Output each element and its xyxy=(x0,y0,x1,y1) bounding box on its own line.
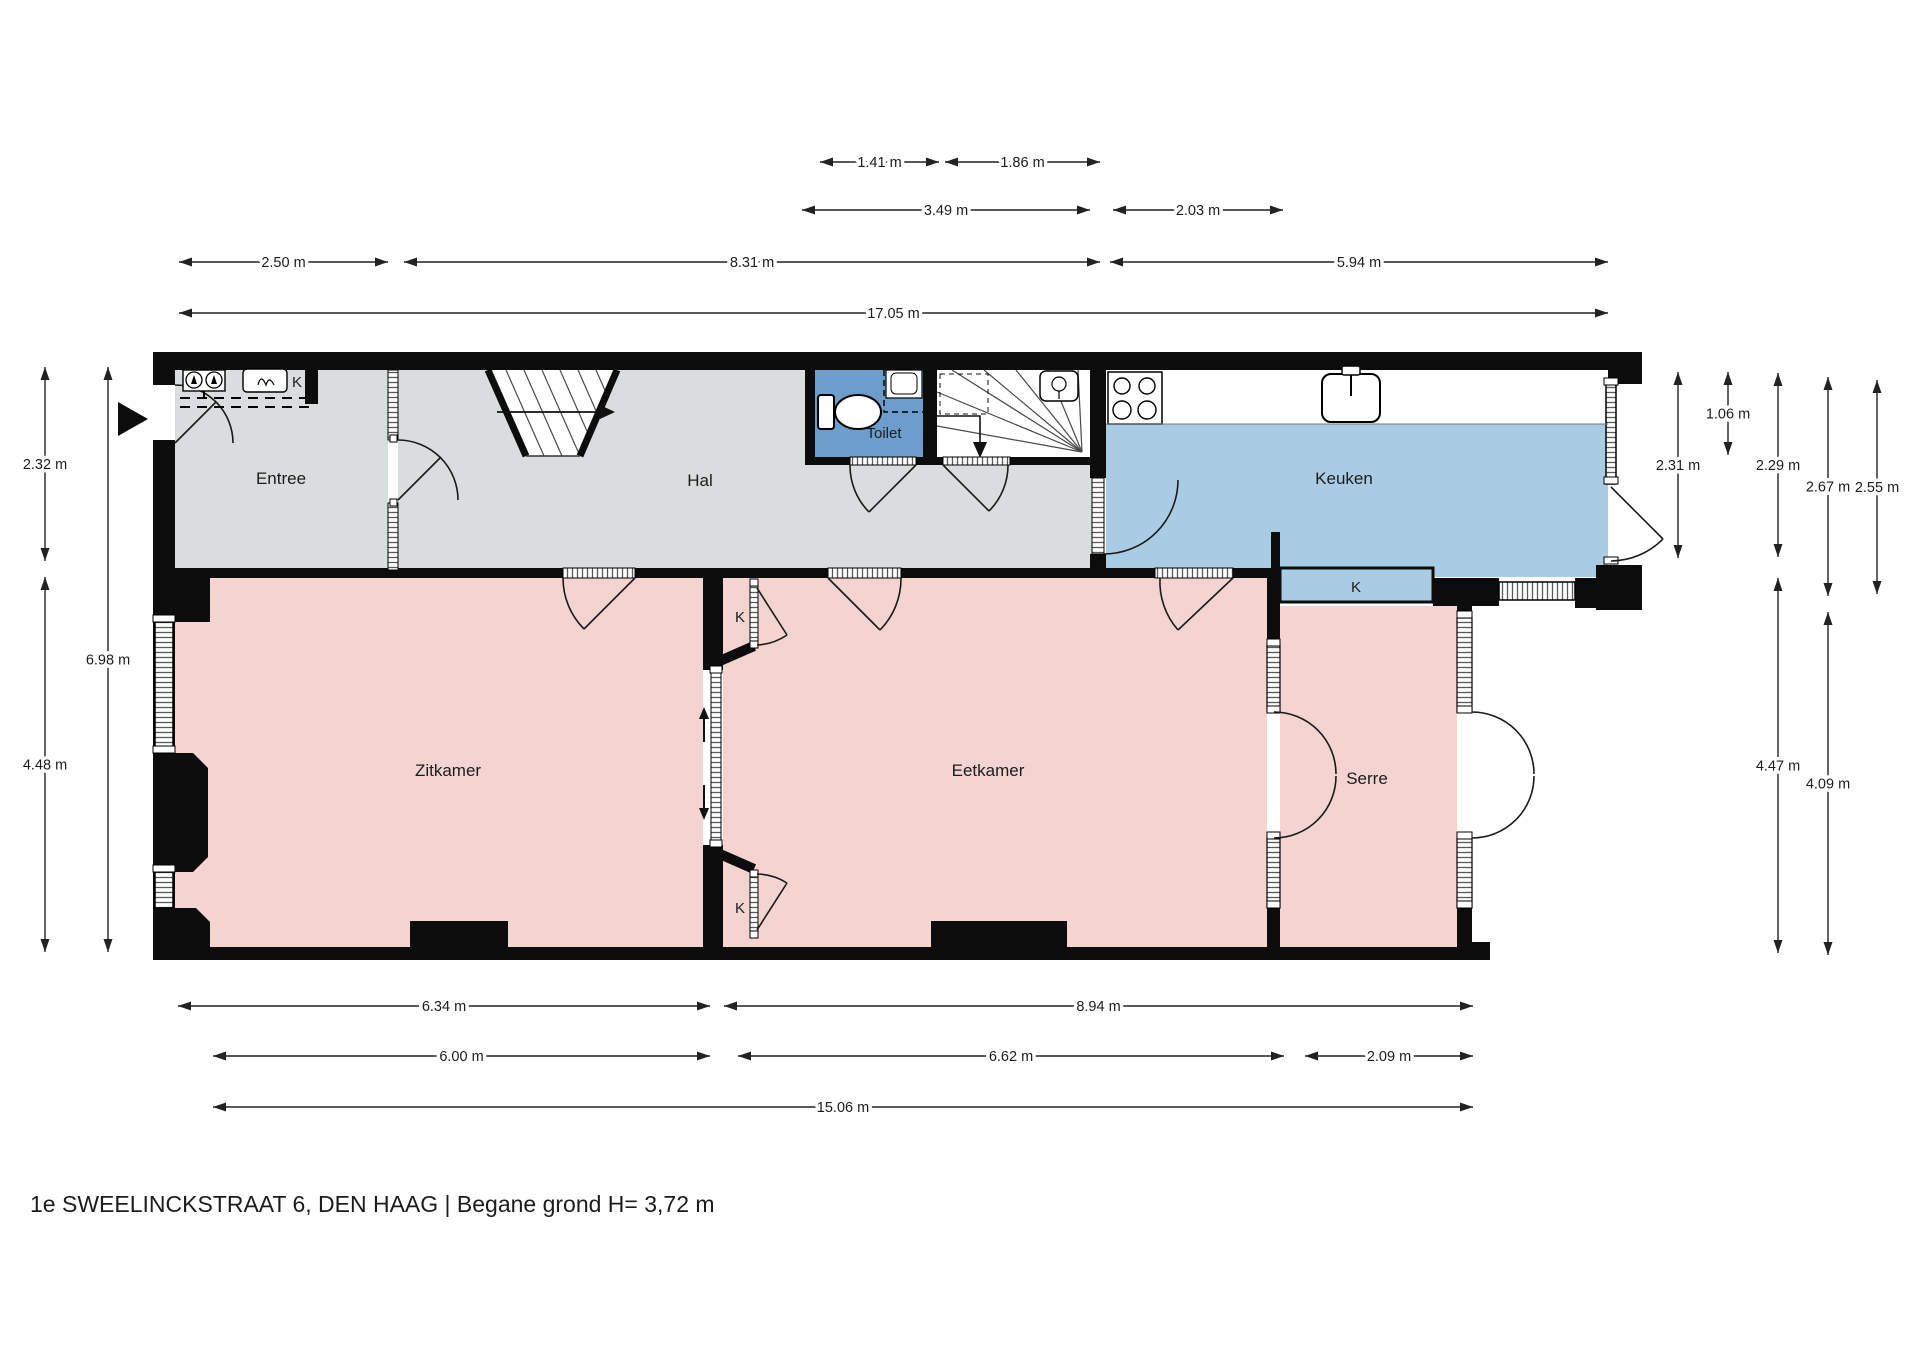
wall-corner-keuken-right xyxy=(1596,565,1642,610)
door-sill-hal-zitkamer xyxy=(563,568,635,578)
dimension-label: 2.55 m xyxy=(1855,480,1899,496)
wall-bottom xyxy=(153,947,1490,960)
dimension-label: 6.98 m xyxy=(86,653,130,669)
glass-partition-entree-hal-upper xyxy=(388,370,398,440)
stove-icon xyxy=(1108,372,1162,424)
dimension-label: 8.31 m xyxy=(730,255,774,271)
room-keuken-floor xyxy=(1106,424,1608,577)
room-label-eetkamer: Eetkamer xyxy=(952,761,1025,780)
dimension-vertical: 2.55 m xyxy=(1855,380,1899,594)
glass-partition-entree-hal-lower xyxy=(388,503,398,570)
floorplan-drawing: Entree Hal Toilet Keuken Zitkamer Eetkam… xyxy=(0,0,1920,1358)
kitchen-sink-icon xyxy=(1322,366,1380,422)
dimension-label: 6.00 m xyxy=(439,1049,483,1065)
dimension-horizontal: 2.03 m xyxy=(1113,203,1283,219)
dimension-vertical: 4.47 m xyxy=(1756,578,1800,953)
wall-toilet-bottom-b xyxy=(916,457,943,465)
chimney-breast xyxy=(175,753,208,872)
dimension-vertical: 6.98 m xyxy=(86,367,130,952)
closet-door-bottom xyxy=(750,876,758,932)
wall-hal-keuken-upper xyxy=(1090,370,1106,478)
dimension-horizontal: 5.94 m xyxy=(1110,255,1608,271)
dimension-label: 5.94 m xyxy=(1337,255,1381,271)
dimension-vertical: 4.09 m xyxy=(1806,612,1850,955)
door-sill-toilet xyxy=(850,457,916,465)
wall-keuken-bottom-east xyxy=(1433,578,1499,606)
room-label-toilet: Toilet xyxy=(866,425,902,442)
page-title: 1e SWEELINCKSTRAAT 6, DEN HAAG | Begane … xyxy=(30,1191,715,1217)
glass-ensuite-partition xyxy=(711,672,721,843)
room-label-zitkamer: Zitkamer xyxy=(415,761,481,780)
closet-label-bottom: K xyxy=(735,900,745,917)
dimension-label: 6.62 m xyxy=(989,1049,1033,1065)
dimension-horizontal: 2.50 m xyxy=(179,255,388,271)
dimension-label: 3.49 m xyxy=(924,203,968,219)
heater-cabinet-icon xyxy=(243,369,287,392)
room-label-hal: Hal xyxy=(687,471,713,490)
french-doors-serre-exterior xyxy=(1472,712,1534,838)
window-keuken-right xyxy=(1606,384,1616,484)
toilet-icon xyxy=(818,395,881,429)
window-zitkamer-left-upper xyxy=(155,622,173,753)
dimension-horizontal: 3.49 m xyxy=(802,203,1090,219)
dimension-label: 2.09 m xyxy=(1367,1049,1411,1065)
dimension-label: 2.32 m xyxy=(23,457,67,473)
window-keuken-bottom xyxy=(1499,582,1575,600)
dimension-horizontal: 6.62 m xyxy=(738,1049,1284,1065)
wall-top xyxy=(153,352,1642,370)
dimension-label: 15.06 m xyxy=(817,1100,869,1116)
room-label-serre: Serre xyxy=(1346,769,1388,788)
wall-pier-eetkamer xyxy=(931,921,1067,947)
wall-block-zitkamer-topleft xyxy=(175,578,210,622)
window-serre-left-upper xyxy=(1267,645,1280,712)
wall-toilet-bottom-a xyxy=(805,457,850,465)
dimension-label: 6.34 m xyxy=(422,999,466,1015)
dimension-horizontal: 17.05 m xyxy=(179,306,1608,322)
wall-stairs-bottom xyxy=(1010,457,1090,465)
dimension-label: 17.05 m xyxy=(867,306,919,322)
entrance-door-opening xyxy=(153,385,175,440)
dimension-label: 8.94 m xyxy=(1076,999,1120,1015)
door-keuken-exterior xyxy=(1611,487,1663,561)
dimension-horizontal: 15.06 m xyxy=(213,1100,1473,1116)
wall-corner-serre-bottomright xyxy=(1457,942,1490,960)
door-sill-stairs xyxy=(943,457,1010,465)
closet-label-top: K xyxy=(735,609,745,626)
closet-label-keuken: K xyxy=(1351,579,1361,596)
wall-serre-left-top xyxy=(1267,577,1280,645)
wall-toilet-left xyxy=(805,370,815,465)
dimension-label: 4.48 m xyxy=(23,758,67,774)
dimension-horizontal: 6.34 m xyxy=(178,999,710,1015)
dimension-horizontal: 1.86 m xyxy=(945,155,1100,171)
dimension-vertical: 2.67 m xyxy=(1806,377,1850,596)
dimension-label: 1.86 m xyxy=(1000,155,1044,171)
boiler-icon xyxy=(1040,371,1078,401)
dimension-vertical: 2.29 m xyxy=(1756,373,1800,557)
wall-stub-keuken-closet xyxy=(1271,532,1280,568)
dimension-horizontal: 8.94 m xyxy=(724,999,1473,1015)
wall-ensuite-spine-bottom xyxy=(703,845,723,947)
room-label-keuken: Keuken xyxy=(1315,469,1373,488)
dimension-vertical: 1.06 m xyxy=(1706,372,1750,455)
dimension-horizontal: 8.31 m xyxy=(404,255,1100,271)
dimension-vertical: 4.48 m xyxy=(23,577,67,952)
room-hal-floor-east xyxy=(805,465,1095,568)
window-serre-right-lower xyxy=(1457,838,1472,908)
wall-ensuite-spine-top xyxy=(703,568,723,670)
dimension-label: 2.29 m xyxy=(1756,458,1800,474)
dimension-label: 4.09 m xyxy=(1806,777,1850,793)
dimension-label: 4.47 m xyxy=(1756,759,1800,775)
dimension-horizontal: 6.00 m xyxy=(213,1049,710,1065)
wall-serre-right-bottom xyxy=(1457,908,1472,947)
window-serre-right-upper xyxy=(1457,618,1472,712)
dimension-label: 2.31 m xyxy=(1656,458,1700,474)
wall-toilet-right xyxy=(923,370,937,465)
closet-label-meterkast: K xyxy=(292,374,302,391)
entrance-arrow-icon xyxy=(118,402,148,436)
dimension-horizontal: 2.09 m xyxy=(1305,1049,1473,1065)
dimension-vertical: 2.32 m xyxy=(23,367,67,561)
glass-door-hal-keuken xyxy=(1092,478,1104,554)
window-zitkamer-left-lower xyxy=(155,872,173,908)
dimension-horizontal: 1.41 m xyxy=(820,155,939,171)
room-label-entree: Entree xyxy=(256,469,306,488)
floorplan-page: Entree Hal Toilet Keuken Zitkamer Eetkam… xyxy=(0,0,1920,1358)
dimension-label: 1.06 m xyxy=(1706,407,1750,423)
dimension-vertical: 2.31 m xyxy=(1656,372,1700,558)
dimension-label: 2.03 m xyxy=(1176,203,1220,219)
dimension-label: 2.50 m xyxy=(261,255,305,271)
wall-pier-zitkamer xyxy=(410,921,508,947)
window-serre-left-lower xyxy=(1267,838,1280,908)
dimension-label: 2.67 m xyxy=(1806,480,1850,496)
wall-hal-keuken-lower xyxy=(1090,554,1106,578)
door-sill-keuken-eetkamer xyxy=(1155,568,1233,578)
door-sill-hal-eetkamer xyxy=(828,568,901,578)
wall-serre-left-bottom xyxy=(1267,908,1280,947)
dimension-label: 1.41 m xyxy=(857,155,901,171)
closet-door-top xyxy=(750,586,758,642)
